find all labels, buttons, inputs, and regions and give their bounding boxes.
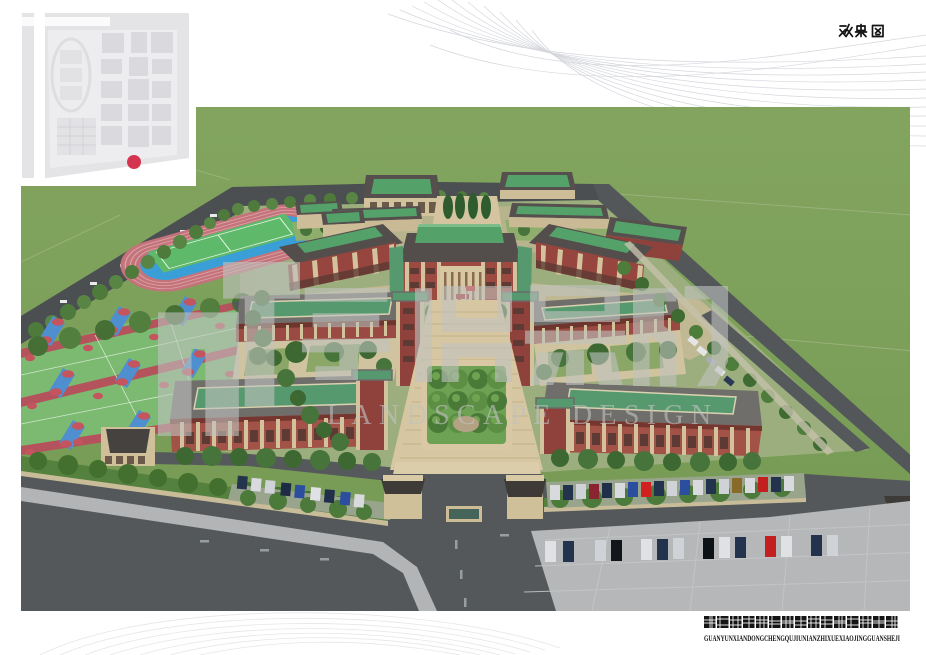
- svg-text:LANDSCAPE DESIGN: LANDSCAPE DESIGN: [327, 400, 718, 431]
- svg-text:GUANYUNXIANDONGCHENGQUJIUNIANZ: GUANYUNXIANDONGCHENGQUJIUNIANZHIXUEXIAOJ…: [704, 634, 900, 643]
